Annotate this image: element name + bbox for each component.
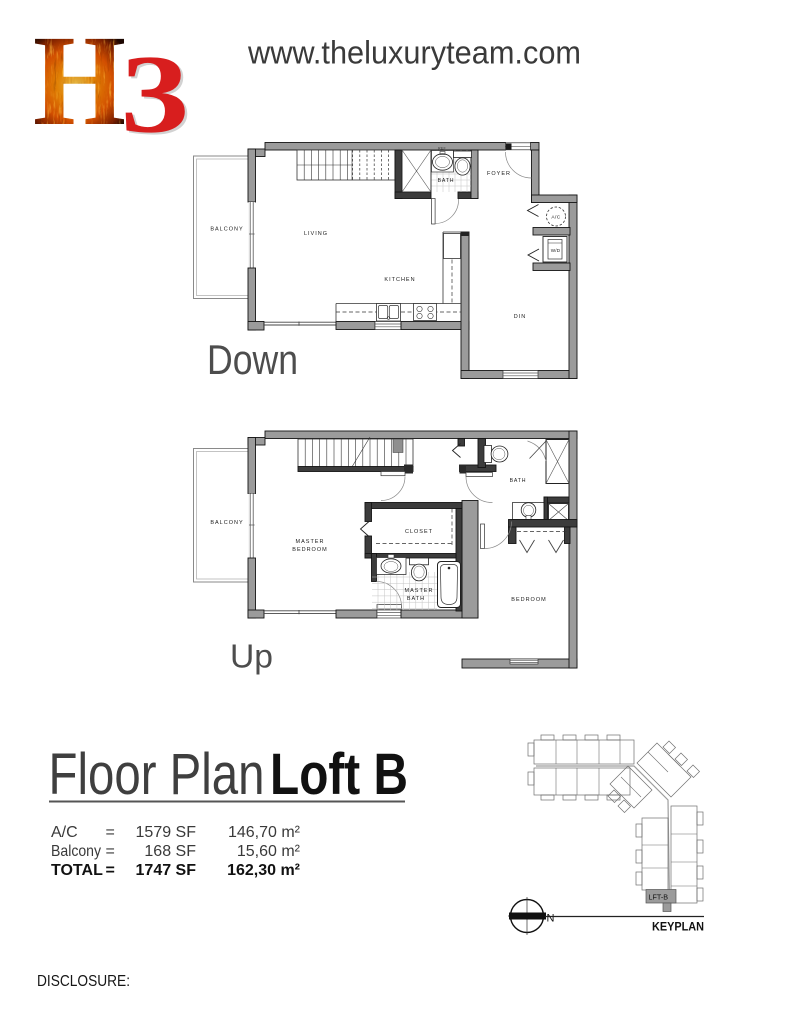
svg-text:LIVING: LIVING	[304, 231, 328, 237]
svg-text:3: 3	[121, 33, 190, 157]
svg-text:DIN: DIN	[514, 314, 526, 320]
svg-text:Up: Up	[230, 638, 273, 675]
svg-text:KITCHEN: KITCHEN	[384, 277, 415, 283]
svg-text:Balcony: Balcony	[51, 843, 101, 860]
svg-text:=: =	[106, 824, 115, 841]
svg-text:1747 SF: 1747 SF	[136, 862, 197, 879]
svg-text:W/D: W/D	[551, 248, 561, 253]
svg-text:146,70 m²: 146,70 m²	[228, 824, 301, 841]
svg-text:1579 SF: 1579 SF	[136, 824, 197, 841]
svg-text:BATH: BATH	[510, 478, 527, 484]
svg-text:BALCONY: BALCONY	[210, 227, 243, 233]
svg-text:Floor Plan: Floor Plan	[49, 742, 265, 807]
svg-text:168 SF: 168 SF	[144, 843, 196, 860]
svg-text:CLOSET: CLOSET	[405, 529, 433, 535]
svg-text:LFT-B: LFT-B	[649, 893, 669, 902]
svg-text:MASTER: MASTER	[296, 539, 325, 545]
svg-text:A/C: A/C	[51, 824, 78, 841]
svg-text:www.theluxuryteam.com: www.theluxuryteam.com	[247, 35, 581, 71]
svg-text:Down: Down	[207, 336, 298, 383]
svg-text:A/C: A/C	[551, 215, 560, 221]
svg-text:BEDROOM: BEDROOM	[511, 597, 546, 603]
svg-text:DISCLOSURE:: DISCLOSURE:	[37, 973, 130, 990]
svg-text:FOYER: FOYER	[487, 171, 511, 177]
svg-text:=: =	[106, 862, 115, 879]
svg-text:MASTER: MASTER	[405, 588, 434, 594]
svg-text:Loft B: Loft B	[270, 742, 408, 807]
svg-text:BALCONY: BALCONY	[210, 520, 243, 526]
svg-text:15,60 m²: 15,60 m²	[237, 843, 301, 860]
svg-text:TOTAL: TOTAL	[51, 862, 103, 879]
svg-text:N: N	[547, 913, 555, 925]
svg-text:162,30 m²: 162,30 m²	[227, 862, 300, 879]
svg-text:BEDROOM: BEDROOM	[292, 547, 327, 553]
svg-text:=: =	[106, 843, 115, 860]
svg-text:REF: REF	[438, 147, 447, 151]
svg-text:KEYPLAN: KEYPLAN	[652, 920, 704, 934]
svg-text:BATH: BATH	[438, 178, 455, 184]
svg-text:BATH: BATH	[407, 596, 425, 602]
